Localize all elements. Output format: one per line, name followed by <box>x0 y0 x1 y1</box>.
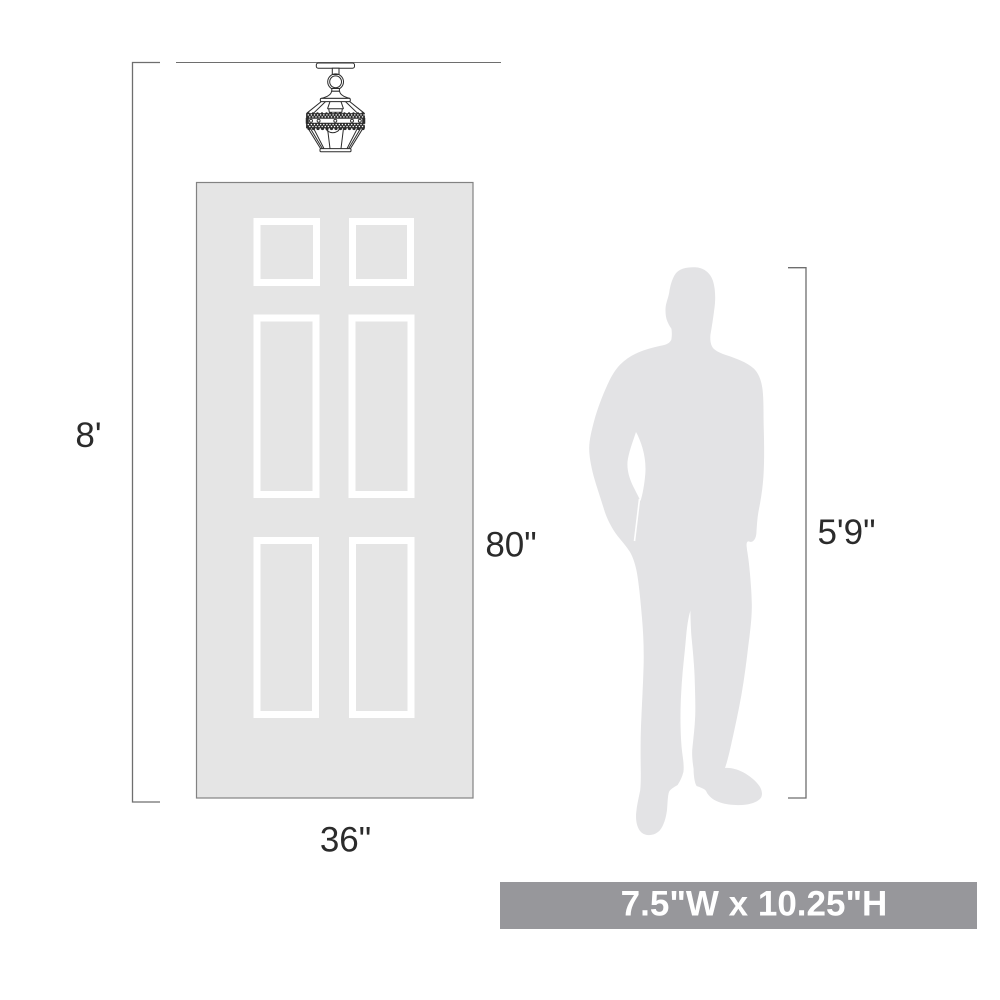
svg-text:5'9": 5'9" <box>817 513 875 552</box>
svg-text:36": 36" <box>320 821 371 860</box>
svg-text:8': 8' <box>75 416 101 455</box>
svg-text:7.5"W x 10.25"H: 7.5"W x 10.25"H <box>621 885 888 924</box>
svg-text:80": 80" <box>485 526 536 565</box>
